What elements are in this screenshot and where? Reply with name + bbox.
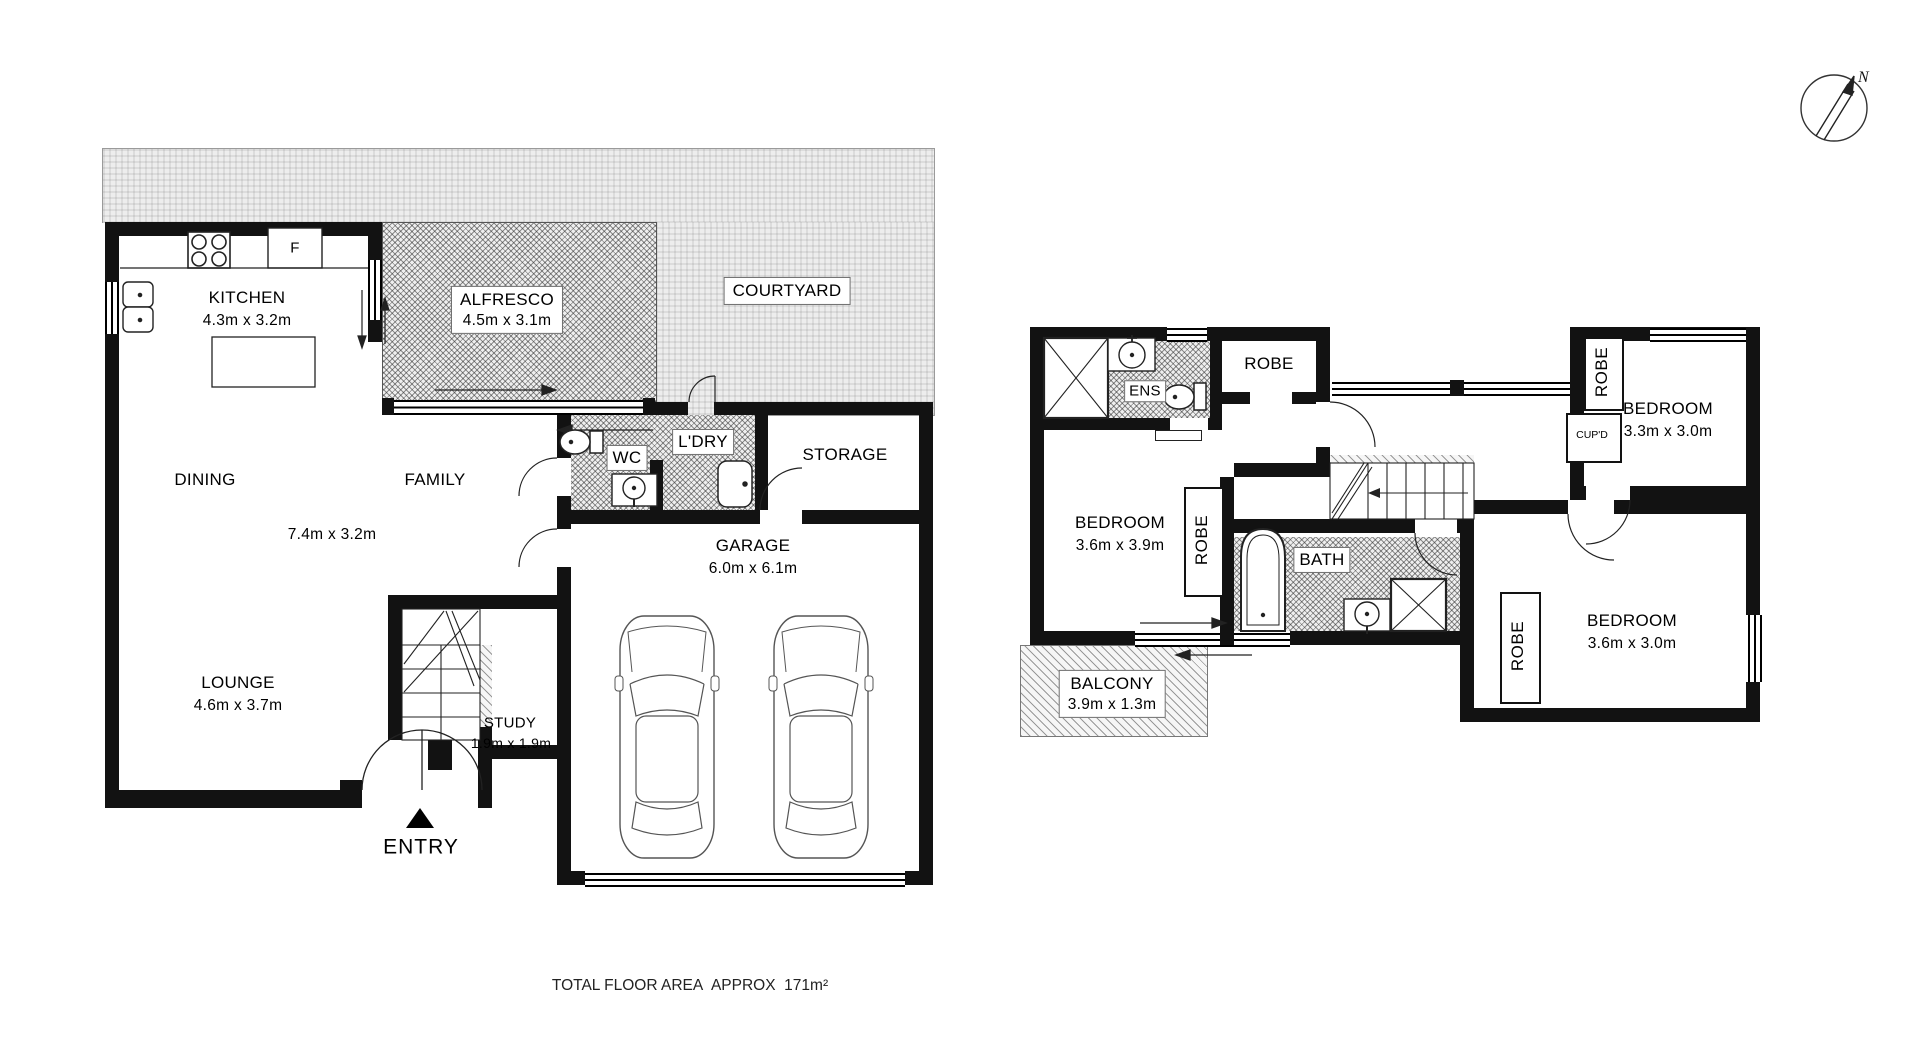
ensuite-label: ENS	[1124, 380, 1166, 402]
robe-bottom-right-label: ROBE	[1508, 621, 1528, 671]
alfresco-sliding-door	[382, 400, 655, 415]
wall	[905, 871, 933, 885]
wall	[105, 222, 382, 236]
balcony-label: BALCONY 3.9m x 1.3m	[1059, 670, 1166, 718]
wall	[1030, 631, 1135, 645]
wall	[1222, 392, 1250, 404]
car-icon	[615, 616, 719, 858]
door-arc	[519, 458, 557, 496]
cupboard-label: CUP'D	[1576, 429, 1608, 443]
wall	[368, 222, 382, 260]
bath-label: BATH	[1293, 547, 1350, 573]
wall	[1030, 327, 1044, 645]
wall	[388, 595, 402, 740]
stove-icon	[188, 232, 230, 268]
bedroom3-window	[1748, 615, 1762, 682]
study-label: STUDY	[484, 713, 536, 733]
alfresco-dims: 4.5m x 3.1m	[460, 311, 554, 331]
wall	[1210, 327, 1222, 430]
wall	[1450, 380, 1464, 396]
balcony-sliding-door	[1135, 633, 1290, 647]
lounge-dims: 4.6m x 3.7m	[194, 696, 283, 716]
kitchen-window	[105, 282, 119, 334]
wall	[557, 415, 571, 458]
wall	[1030, 327, 1167, 341]
wall	[1044, 418, 1170, 430]
bedroom-main-label: BEDROOM	[1075, 512, 1165, 534]
entry-door-arcs	[362, 730, 482, 790]
wall	[643, 398, 655, 415]
wall	[388, 595, 557, 609]
courtyard-area-side	[655, 222, 935, 416]
compass-n-label: N	[1857, 69, 1870, 86]
garage-dims: 6.0m x 6.1m	[709, 559, 798, 579]
wall	[802, 510, 933, 524]
balcony-dims: 3.9m x 1.3m	[1068, 695, 1157, 715]
bedroom-top-right-label: BEDROOM	[1623, 398, 1713, 420]
alfresco-label: ALFRESCO 4.5m x 3.1m	[451, 286, 563, 334]
ground-floor-plan: KITCHEN 4.3m x 3.2m F ALFRESCO 4.5m x 3.…	[100, 140, 935, 885]
wall	[1316, 327, 1330, 402]
sink-icon	[123, 282, 153, 332]
wall	[650, 460, 663, 510]
kitchen-label: KITCHEN	[209, 287, 286, 309]
fridge-label: F	[290, 238, 299, 258]
wall	[1234, 463, 1330, 477]
wall	[1746, 327, 1760, 500]
family-label: FAMILY	[404, 469, 465, 491]
wall	[1292, 392, 1316, 404]
bedroom-top-right-dims: 3.3m x 3.0m	[1624, 422, 1713, 442]
garage-door	[585, 873, 905, 887]
stair-edge-hatch	[1330, 455, 1474, 463]
wall	[755, 415, 768, 510]
wall	[1234, 519, 1415, 533]
total-floor-area-label: TOTAL FLOOR AREA APPROX 171m²	[410, 977, 970, 995]
door-arc	[1568, 514, 1614, 560]
robe-walkin-label: ROBE	[1244, 353, 1293, 375]
ensuite-floor	[1108, 338, 1210, 418]
wall	[340, 780, 362, 808]
wall	[1630, 486, 1760, 500]
wall	[1570, 341, 1584, 413]
stairs	[1330, 463, 1474, 519]
wall	[1746, 500, 1760, 615]
wall	[382, 398, 394, 415]
wall	[714, 402, 933, 415]
study-dims: 1.9m x 1.9m	[471, 734, 551, 752]
wall	[428, 740, 452, 770]
car-icon	[769, 616, 873, 858]
storage-label: STORAGE	[803, 444, 888, 466]
compass-circle	[1801, 75, 1867, 141]
entry-arrow	[406, 808, 434, 828]
stairs	[402, 609, 480, 740]
entry-label: ENTRY	[383, 833, 459, 860]
garage-label: GARAGE	[716, 535, 791, 557]
kitchen-dims: 4.3m x 3.2m	[203, 311, 292, 331]
wall	[105, 790, 340, 808]
door-arc	[519, 529, 557, 567]
wc-label: WC	[607, 445, 648, 471]
wall	[557, 871, 585, 885]
bedroom-main-dims: 3.6m x 3.9m	[1076, 536, 1165, 556]
alfresco-name: ALFRESCO	[460, 289, 554, 311]
courtyard-area	[102, 148, 935, 223]
bedroom-bottom-right-label: BEDROOM	[1587, 610, 1677, 632]
wall	[1460, 708, 1760, 722]
wall	[1460, 500, 1474, 722]
wall	[919, 415, 933, 885]
dining-family-dims: 7.4m x 3.2m	[288, 525, 377, 545]
wall	[1614, 500, 1760, 514]
door-arc	[1330, 402, 1375, 447]
robe-top-right-label: ROBE	[1592, 347, 1612, 397]
kitchen-alfresco-window	[368, 260, 382, 320]
wall	[368, 320, 382, 342]
north-compass: N	[1790, 62, 1882, 154]
robe-main-label: ROBE	[1192, 515, 1212, 565]
hall-window	[1332, 382, 1450, 396]
courtyard-label: COURTYARD	[724, 277, 851, 305]
shower-icon	[1044, 338, 1108, 418]
wall	[1570, 459, 1584, 486]
bedroom2-window	[1650, 328, 1750, 342]
wall	[557, 567, 571, 871]
wall	[1460, 500, 1568, 514]
wall	[1290, 631, 1460, 645]
floorplan-page: KITCHEN 4.3m x 3.2m F ALFRESCO 4.5m x 3.…	[0, 0, 1920, 1051]
dining-label: DINING	[174, 469, 235, 491]
hall-window	[1464, 382, 1570, 396]
wall	[1207, 327, 1330, 341]
stairs-arrow	[1368, 488, 1380, 498]
ens-ledge	[1155, 430, 1202, 441]
compass-needle	[1816, 76, 1854, 140]
balcony-name: BALCONY	[1068, 673, 1157, 695]
lounge-label: LOUNGE	[201, 672, 275, 694]
laundry-label: L'DRY	[672, 429, 734, 455]
first-floor-plan: ENS ROBE BEDROOM 3.6m x 3.9m ROBE CUP'D …	[1020, 327, 1765, 737]
island-bench	[212, 337, 315, 387]
wall	[557, 510, 760, 524]
ens-window	[1167, 328, 1207, 342]
bedroom-bottom-right-dims: 3.6m x 3.0m	[1588, 634, 1677, 654]
wall	[1570, 486, 1586, 500]
